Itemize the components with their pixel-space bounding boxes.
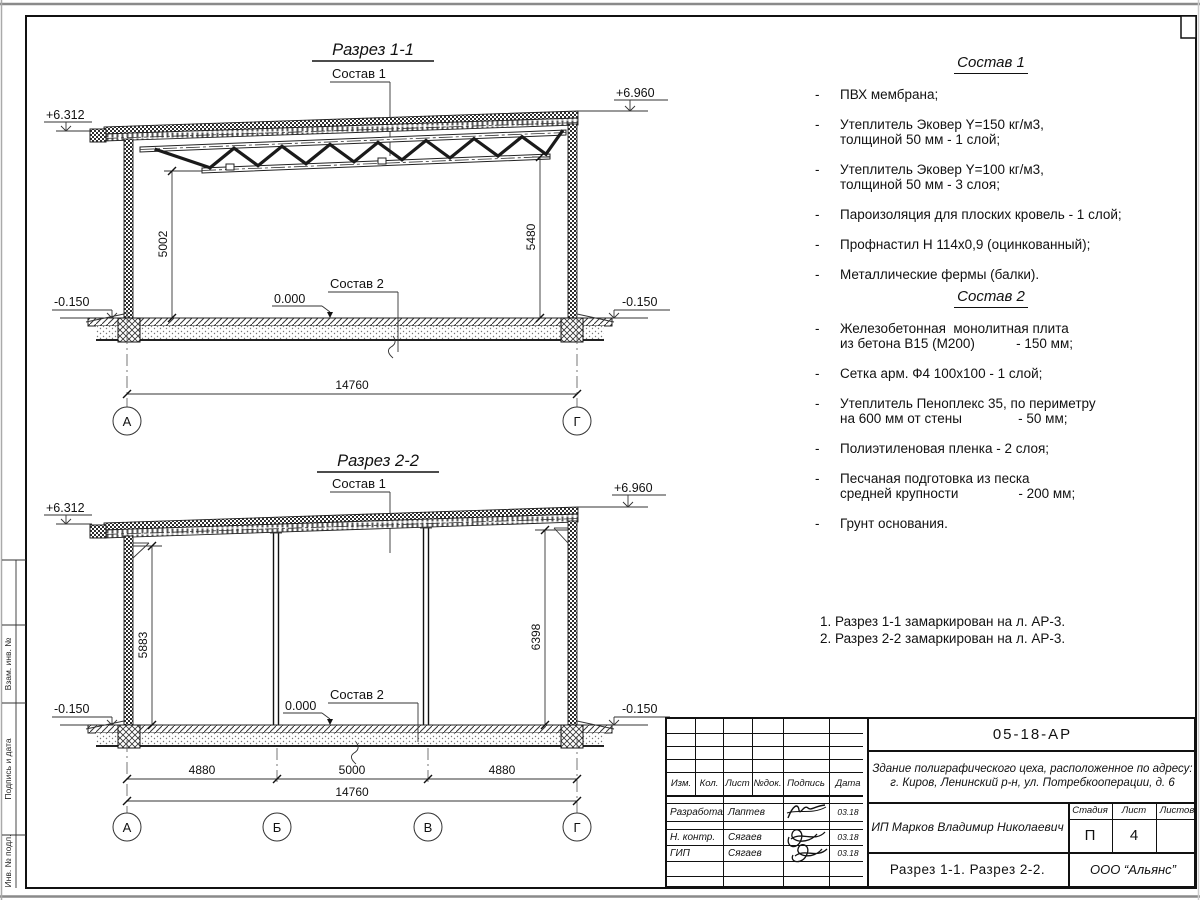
composition-2-list: Состав 2 - Железобетонная монолитная пли… [815,288,1167,546]
list-item: - Сетка арм. Ф4 100х100 - 1 слой; [815,366,1167,381]
section-1-1-title: Разрез 1-1 [332,41,414,59]
composition-1-list: Состав 1 - ПВХ мембрана; - Утеплитель Эк… [815,54,1167,297]
horizontal-dims-2-2: 4880 5000 4880 14760 А Б В Г [113,736,591,841]
floor-slab-1-1 [60,314,648,358]
wall-left-2-2 [124,536,133,725]
title-block: Изм. Кол. Лист №док. Подпись Дата Разраб… [665,717,1196,888]
notes: 1. Разрез 1-1 замаркирован на л. АР-3. 2… [820,613,1065,647]
date-gip: 03.18 [829,845,867,861]
list-item: - Грунт основания. [815,516,1167,531]
svg-text:5000: 5000 [339,763,366,777]
col-podpis: Подпись [783,772,829,795]
svg-text:Б: Б [273,820,282,835]
svg-text:-0.150: -0.150 [54,702,89,716]
svg-text:+6.312: +6.312 [46,108,85,122]
svg-text:0.000: 0.000 [285,699,316,713]
list-item: - Металлические фермы (балки). [815,267,1167,282]
date-razrabotal: 03.18 [829,803,867,821]
list-item: - Утеплитель Эковер Y=100 кг/м3,толщиной… [815,162,1167,192]
col-izm: Изм. [667,772,695,795]
section-2-2: Разрез 2-2 Состав 1 [44,452,670,841]
signature-syagaev [781,823,829,863]
wall-right-2-2 [568,521,577,725]
svg-text:В: В [424,820,433,835]
list-item: - Полиэтиленовая пленка - 2 слоя; [815,441,1167,456]
sostav2-label: Состав 2 [330,276,384,291]
object-description: Здание полиграфического цеха, расположен… [867,750,1198,802]
role-gip: ГИП [667,845,723,861]
composition-2-title: Состав 2 [815,288,1167,305]
col-data: Дата [829,772,867,795]
sostav1-label-2: Состав 1 [332,476,386,491]
col-kol: Кол. [695,772,723,795]
svg-text:14760: 14760 [335,378,369,392]
note-line: 2. Разрез 2-2 замаркирован на л. АР-3. [820,630,1065,647]
client-name: ИП Марков Владимир Николаевич [867,802,1068,852]
sostav2-label-2: Состав 2 [330,687,384,702]
gutter-left-2 [90,525,106,538]
frame-side-stamp: Взам. инв. № Подпись и дата Инв. № подл. [2,560,26,888]
signature-laptev [784,799,828,823]
roof-2-2 [90,507,578,538]
gutter-left [90,129,106,142]
col-ndok: №док. [752,772,783,795]
svg-text:Г: Г [573,820,580,835]
name-syagaev-2: Сягаев [725,845,783,861]
svg-text:4880: 4880 [489,763,516,777]
svg-text:5002: 5002 [156,230,170,257]
sheets-value [1156,819,1198,852]
svg-text:0.000: 0.000 [274,292,305,306]
svg-text:6398: 6398 [529,623,543,650]
svg-text:4880: 4880 [189,763,216,777]
list-item: - Песчаная подготовка из пескасредней кр… [815,471,1167,501]
section-2-2-title: Разрез 2-2 [337,452,419,470]
floor-slab-2-2 [60,721,648,764]
name-laptev: Лаптев [725,803,783,821]
svg-text:5883: 5883 [136,631,150,658]
list-item: - Утеплитель Эковер Y=150 кг/м3,толщиной… [815,117,1167,147]
col-list: Лист [723,772,752,795]
corner-doc-box [1181,16,1196,38]
wall-right-1-1 [568,124,577,318]
side-label-vzam: Взам. инв. № [3,638,13,691]
list-item: - Пароизоляция для плоских кровель - 1 с… [815,207,1167,222]
svg-text:А: А [123,820,132,835]
sheets-label: Листов [1156,802,1198,819]
wall-left-1-1 [124,139,133,318]
sheet-label: Лист [1112,802,1156,819]
side-label-podpis: Подпись и дата [3,738,13,799]
name-syagaev-1: Сягаев [725,829,783,845]
svg-text:+6.960: +6.960 [616,86,655,100]
doc-number: 05-18-АР [867,719,1198,750]
role-razrabotal: Разработал [667,803,723,821]
date-nkontr: 03.18 [829,829,867,845]
svg-text:5480: 5480 [524,223,538,250]
svg-text:+6.960: +6.960 [614,481,653,495]
sostav1-label: Состав 1 [332,66,386,81]
company-name: ООО “Альянс” [1068,852,1198,886]
note-line: 1. Разрез 1-1 замаркирован на л. АР-3. [820,613,1065,630]
sheet-value: 4 [1112,819,1156,852]
list-item: - Профнастил Н 114х0,9 (оцинкованный); [815,237,1167,252]
list-item: - Железобетонная монолитная плитаиз бето… [815,321,1167,351]
list-item: - ПВХ мембрана; [815,87,1167,102]
svg-text:Г: Г [573,414,580,429]
vertical-dims-1-1: 5002 5480 [156,153,550,322]
object-line-1: Здание полиграфического цеха, расположен… [872,762,1192,776]
svg-text:14760: 14760 [335,785,369,799]
drawing-title: Разрез 1-1. Разрез 2-2. [867,852,1068,886]
svg-text:А: А [123,414,132,429]
svg-text:-0.150: -0.150 [54,295,89,309]
role-nkontr: Н. контр. [667,829,723,845]
stage-value: П [1068,819,1112,852]
section-1-1: Разрез 1-1 Состав 1 [44,41,670,435]
stage-label: Стадия [1068,802,1112,819]
list-item: - Утеплитель Пеноплекс 35, по периметрун… [815,396,1167,426]
drawing-sheet: { "list_bullet": "-", "frame": { "side_l… [0,0,1200,900]
svg-text:-0.150: -0.150 [622,295,657,309]
svg-text:-0.150: -0.150 [622,702,657,716]
composition-1-title: Состав 1 [815,54,1167,71]
svg-text:+6.312: +6.312 [46,501,85,515]
object-line-2: г. Киров, Ленинский р-н, ул. Потребкоопе… [890,776,1174,790]
side-label-inv: Инв. № подл. [3,835,13,888]
